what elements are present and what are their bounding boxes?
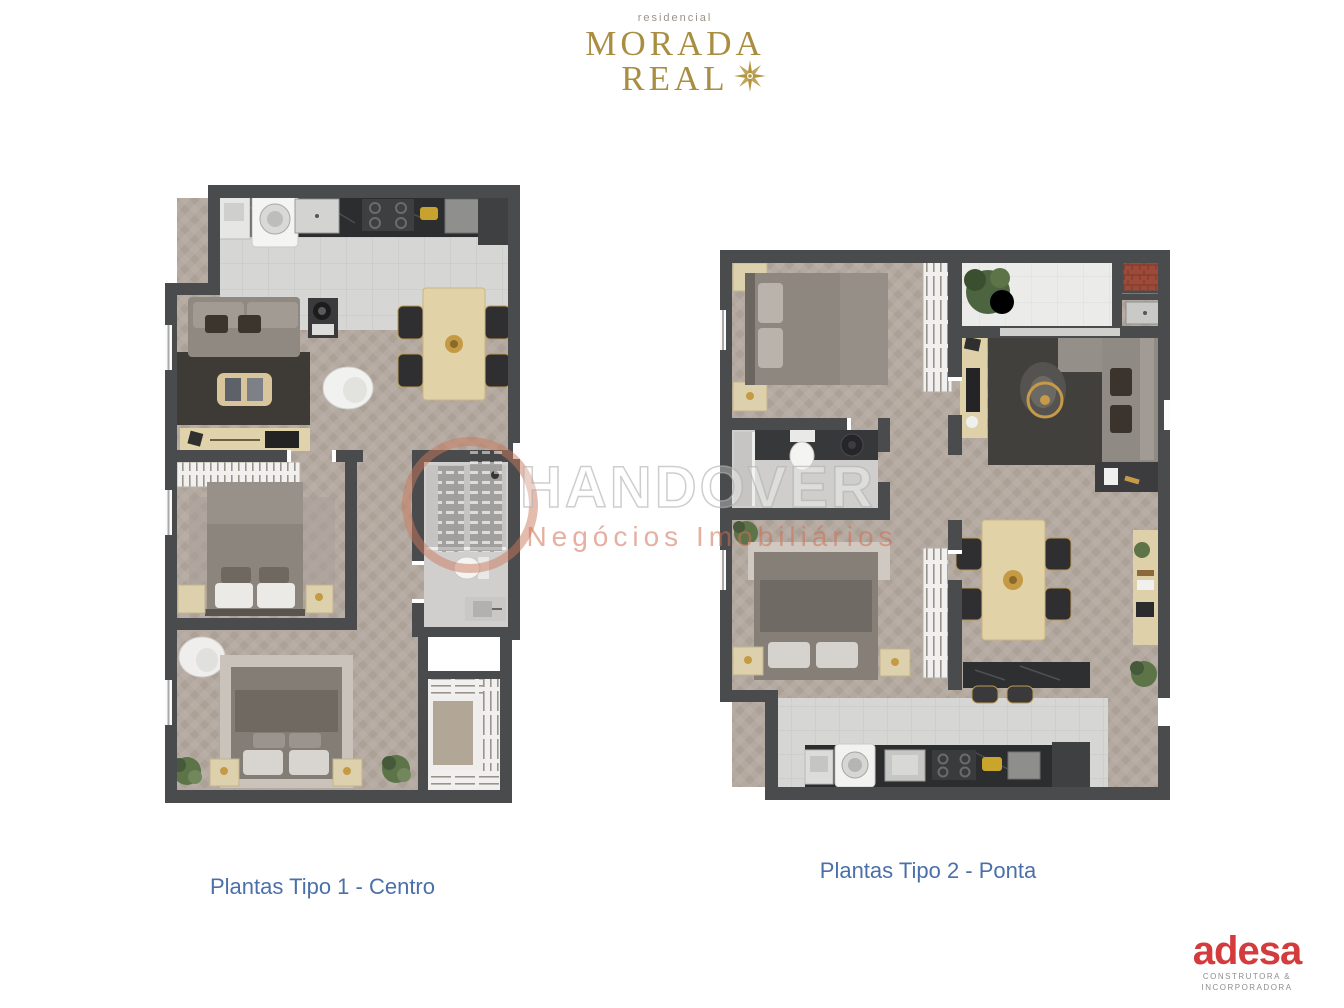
dining-chair bbox=[1045, 538, 1071, 570]
tv bbox=[966, 368, 980, 412]
oven bbox=[1008, 752, 1040, 779]
dining-chair bbox=[398, 306, 423, 339]
dining-chair bbox=[1045, 588, 1071, 620]
kitchen-faucet bbox=[420, 207, 438, 220]
brand-real: REAL bbox=[621, 59, 728, 98]
builder-logo-name: adesa bbox=[1172, 932, 1322, 970]
fridge bbox=[1052, 742, 1090, 788]
builder-logo-subtitle: CONSTRUTORA & INCORPORADORA bbox=[1172, 972, 1322, 994]
kitchen-faucet bbox=[982, 757, 1002, 771]
stool bbox=[972, 686, 998, 703]
floor-plan-tipo-2-ponta bbox=[720, 250, 1170, 800]
tv bbox=[265, 431, 299, 448]
shaft-void bbox=[420, 635, 504, 675]
dining-chair bbox=[398, 354, 423, 387]
cooktop bbox=[362, 199, 414, 231]
toilet bbox=[790, 442, 814, 470]
caption-plan2: Plantas Tipo 2 - Ponta bbox=[750, 858, 1106, 884]
oven bbox=[445, 199, 479, 233]
shower bbox=[734, 432, 754, 506]
brand-morada: MORADA bbox=[575, 26, 775, 61]
sparkle-icon bbox=[733, 59, 767, 98]
cooktop bbox=[932, 750, 976, 780]
fridge bbox=[478, 195, 508, 245]
entry-door-opening bbox=[1158, 698, 1170, 726]
builder-logo: adesa CONSTRUTORA & INCORPORADORA bbox=[1172, 932, 1322, 994]
wardrobe bbox=[923, 262, 952, 392]
brand-logo: residencial MORADA REAL bbox=[575, 12, 775, 96]
closet-bench bbox=[433, 701, 473, 765]
floor-plan-tipo-1-centro bbox=[165, 185, 520, 803]
page: residencial MORADA REAL bbox=[0, 0, 1344, 1008]
wardrobe bbox=[923, 548, 948, 678]
plant bbox=[1134, 542, 1150, 558]
caption-plan1: Plantas Tipo 1 - Centro bbox=[150, 874, 495, 900]
stool bbox=[1007, 686, 1033, 703]
dining-chair bbox=[485, 306, 510, 339]
nightstand bbox=[178, 585, 205, 613]
kitchen bbox=[805, 742, 1090, 788]
dining-chair bbox=[485, 354, 510, 387]
brand-residencial: residencial bbox=[575, 12, 775, 24]
walk-in-closet bbox=[430, 679, 500, 788]
